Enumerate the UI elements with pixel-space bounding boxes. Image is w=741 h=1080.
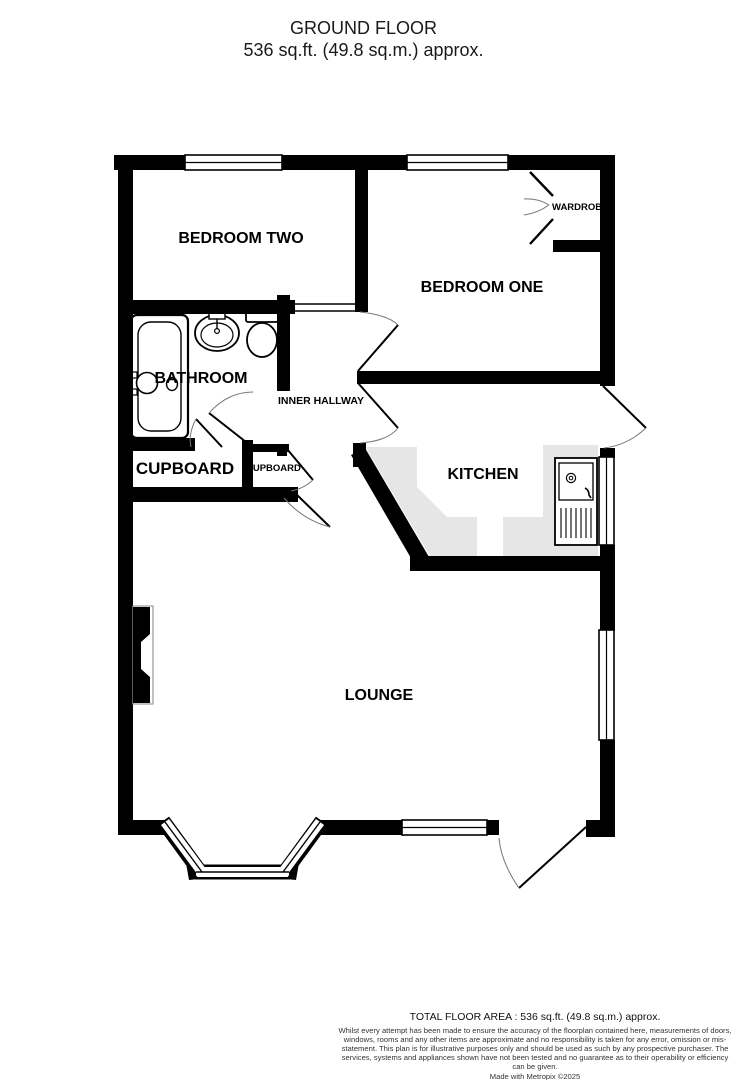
room-label-bathroom: BATHROOM — [154, 370, 247, 387]
wall-kitchen-bottom — [410, 556, 615, 571]
door-bedroom-one — [358, 312, 398, 371]
window-bedroom-two — [185, 155, 282, 170]
room-label-cupboard-small: CUPBOARD — [246, 463, 301, 474]
floorplan-page: GROUND FLOOR 536 sq.ft. (49.8 sq.m.) app… — [0, 0, 741, 1080]
wall-bedroom1-kitchen — [357, 371, 613, 384]
wall-right-upper-overlay — [600, 155, 615, 386]
window-lounge-right — [599, 630, 614, 740]
door-bathroom — [209, 392, 253, 442]
footer-disclaimer: Whilst every attempt has been made to en… — [337, 1027, 733, 1072]
room-label-lounge: LOUNGE — [345, 687, 414, 704]
window-lounge-bottom — [402, 820, 487, 835]
chimney-breast — [133, 606, 153, 704]
wall-cupboard-small-right — [277, 444, 287, 456]
footer-total-area: TOTAL FLOOR AREA : 536 sq.ft. (49.8 sq.m… — [337, 1011, 733, 1023]
kitchen-sink-fixture — [555, 458, 597, 545]
window-bedroom-one — [407, 155, 508, 170]
bay-window — [163, 821, 322, 880]
wall-cupboard-divider-overlay — [242, 440, 253, 490]
footer: TOTAL FLOOR AREA : 536 sq.ft. (49.8 sq.m… — [337, 1011, 733, 1080]
wall-bottom-c — [487, 820, 499, 835]
wall-bathroom-bottom — [118, 438, 195, 451]
basin-fixture — [195, 313, 239, 351]
door-front-entrance — [499, 827, 586, 888]
wall-lounge-top — [118, 487, 298, 502]
room-label-cupboard: CUPBOARD — [136, 459, 234, 478]
wall-bathroom-right — [277, 295, 290, 391]
wall-bedroom-divider — [355, 155, 368, 312]
door-wardrobe-bifold — [524, 172, 553, 244]
floor-plan: BEDROOM TWO BEDROOM ONE WARDROBE BATHROO… — [0, 0, 741, 1080]
opening-bedroom-two — [295, 304, 358, 311]
toilet-fixture — [246, 311, 278, 357]
room-label-kitchen: KITCHEN — [447, 466, 518, 483]
floor-plan-svg: BEDROOM TWO BEDROOM ONE WARDROBE BATHROO… — [0, 0, 741, 1080]
wall-bedroom2-bottom — [118, 300, 295, 314]
footer-credit: Made with Metropix ©2025 — [337, 1072, 733, 1080]
walls — [114, 155, 615, 837]
room-label-inner-hallway: INNER HALLWAY — [278, 395, 364, 407]
room-label-bedroom-two: BEDROOM TWO — [178, 230, 303, 247]
door-kitchen — [358, 383, 398, 443]
window-kitchen-right — [599, 457, 614, 545]
room-label-bedroom-one: BEDROOM ONE — [421, 279, 544, 296]
wall-bottom-d — [586, 820, 615, 837]
door-side-entrance — [603, 386, 646, 448]
wall-bottom-b — [319, 820, 403, 835]
